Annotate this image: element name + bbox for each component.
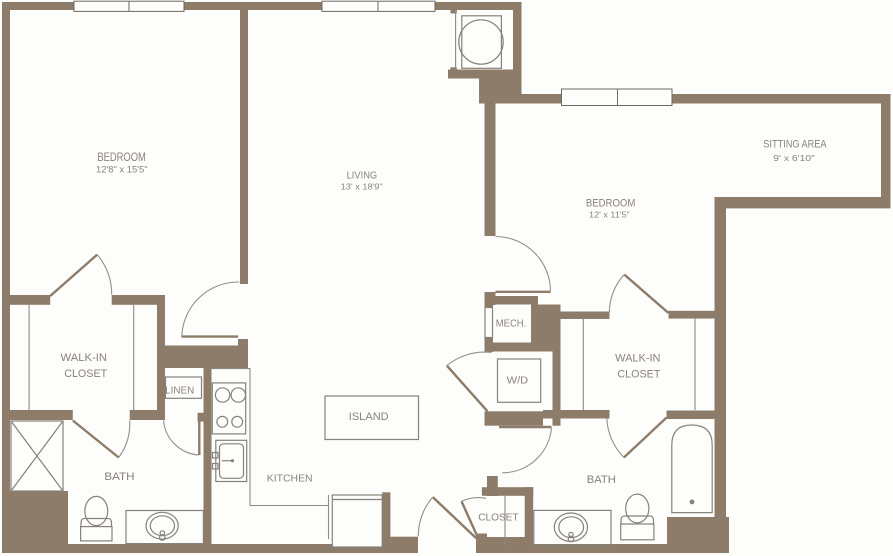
svg-text:LINEN: LINEN [165,385,194,396]
svg-text:SITTING AREA: SITTING AREA [763,138,827,150]
svg-text:BEDROOM: BEDROOM [97,150,146,164]
svg-text:CLOSET: CLOSET [478,512,518,523]
svg-text:MECH.: MECH. [496,319,527,330]
svg-text:KITCHEN: KITCHEN [267,474,313,485]
svg-text:CLOSET: CLOSET [617,369,660,381]
svg-text:BATH: BATH [587,474,616,486]
svg-text:W/D: W/D [507,376,529,387]
svg-text:CLOSET: CLOSET [64,368,107,380]
svg-text:13' x 18'9": 13' x 18'9" [341,183,383,192]
svg-text:WALK-IN: WALK-IN [615,353,660,365]
svg-text:9' x 6'10": 9' x 6'10" [773,153,815,163]
svg-text:12'8" x 15'5": 12'8" x 15'5" [96,165,148,175]
svg-text:BEDROOM: BEDROOM [586,198,635,210]
svg-text:ISLAND: ISLAND [349,411,389,423]
svg-text:WALK-IN: WALK-IN [61,352,108,364]
svg-text:BATH: BATH [104,471,134,483]
svg-text:12' x 11'5": 12' x 11'5" [589,210,630,220]
svg-text:LIVING: LIVING [347,171,378,182]
